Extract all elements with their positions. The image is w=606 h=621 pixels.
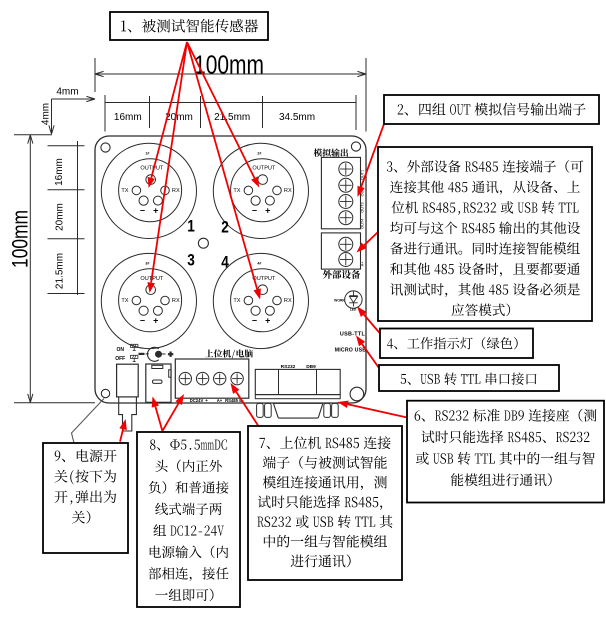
svg-text:TX: TX	[121, 298, 128, 304]
svg-text:21.5mm: 21.5mm	[214, 112, 250, 123]
svg-text:TX: TX	[121, 188, 128, 194]
svg-text:ON: ON	[116, 347, 124, 353]
svg-text:20mm: 20mm	[165, 112, 193, 123]
svg-text:1#: 1#	[145, 151, 149, 155]
svg-text:TX: TX	[233, 188, 240, 194]
svg-text:A+: A+	[217, 398, 223, 403]
svg-text:RX: RX	[172, 188, 180, 194]
svg-text:WORK: WORK	[334, 298, 345, 302]
svg-text:4: 4	[221, 253, 229, 272]
svg-text:100mm: 100mm	[8, 210, 32, 268]
svg-text:16mm: 16mm	[114, 112, 142, 123]
svg-text:+: +	[265, 316, 270, 326]
svg-text:–: –	[252, 205, 257, 215]
svg-text:3#: 3#	[145, 262, 149, 266]
svg-text:RX: RX	[284, 188, 292, 194]
svg-text:4mm: 4mm	[56, 87, 78, 98]
svg-text:RX: RX	[172, 298, 180, 304]
svg-text:+: +	[153, 316, 158, 326]
svg-text:21.5mm: 21.5mm	[55, 253, 66, 289]
svg-text:OUTPUT: OUTPUT	[252, 166, 276, 172]
svg-text:4#: 4#	[257, 262, 261, 266]
svg-text:3: 3	[187, 251, 195, 270]
svg-text:A+: A+	[360, 261, 364, 267]
svg-text:1: 1	[187, 217, 195, 236]
svg-text:TX: TX	[233, 298, 240, 304]
svg-text:2: 2	[221, 218, 229, 237]
svg-text:4mm: 4mm	[41, 103, 52, 125]
svg-text:LED: LED	[350, 307, 357, 311]
svg-text:20mm: 20mm	[55, 203, 66, 231]
svg-text:16mm: 16mm	[54, 158, 65, 186]
svg-text:+: +	[265, 206, 270, 216]
svg-text:MICRO USB: MICRO USB	[335, 347, 367, 353]
svg-text:2#: 2#	[257, 151, 261, 155]
svg-text:–: –	[140, 315, 145, 325]
svg-text:DC24V: DC24V	[190, 398, 204, 403]
svg-text:OUTPUT: OUTPUT	[252, 276, 276, 282]
svg-text:USB-TTL: USB-TTL	[340, 331, 366, 337]
svg-text:OUTPUT: OUTPUT	[140, 166, 164, 172]
svg-text:–: –	[140, 205, 145, 215]
svg-text:34.5mm: 34.5mm	[279, 112, 315, 123]
svg-text:OUT3: OUT3	[360, 202, 364, 212]
svg-text:OFF: OFF	[115, 356, 125, 362]
svg-text:OUT4: OUT4	[360, 219, 364, 229]
svg-text:RX: RX	[284, 298, 292, 304]
svg-text:+: +	[153, 206, 158, 216]
svg-text:+: +	[205, 399, 208, 404]
svg-text:RS485: RS485	[225, 398, 238, 403]
svg-text:–: –	[252, 315, 257, 325]
